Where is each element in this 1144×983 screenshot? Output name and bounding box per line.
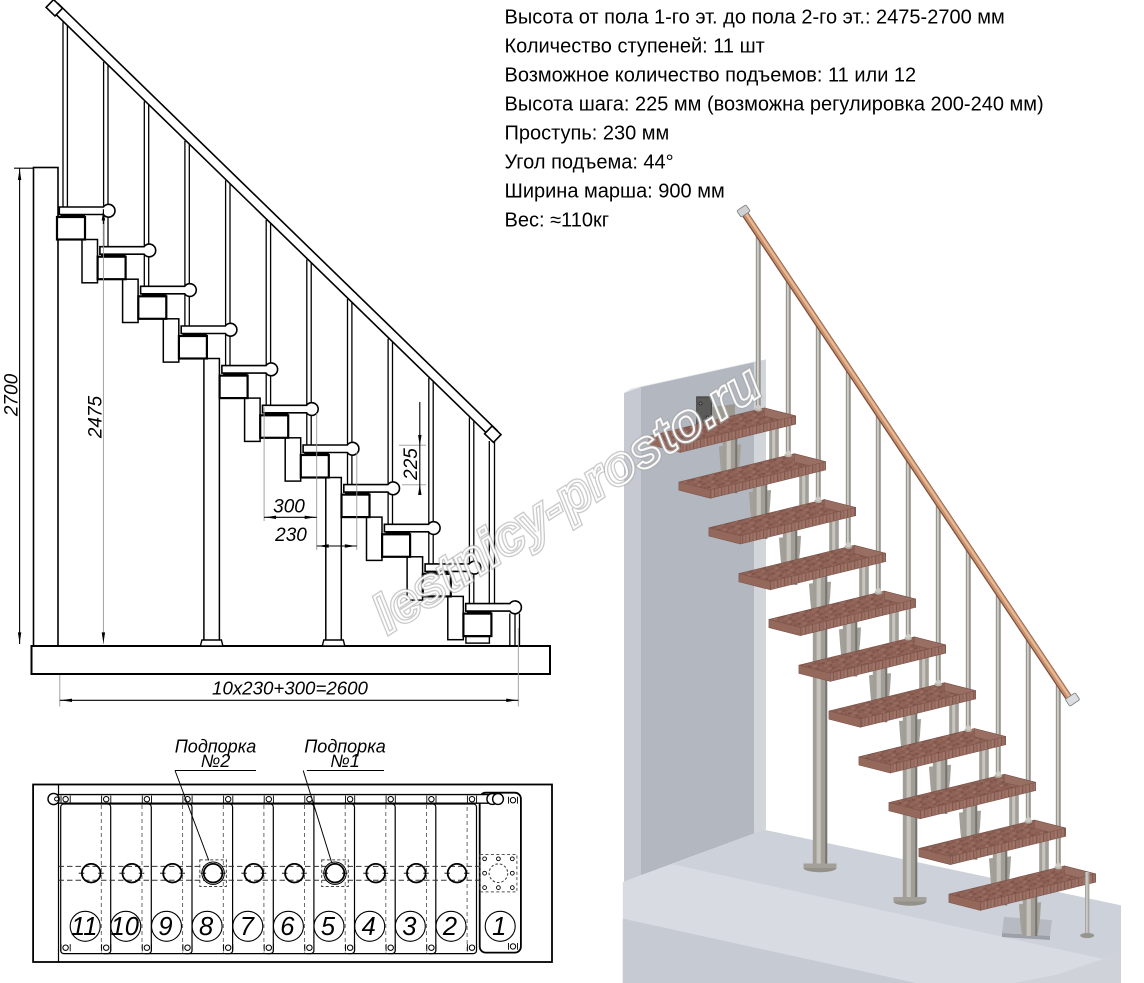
svg-text:Ширина марша: 900 мм: Ширина марша: 900 мм — [505, 181, 725, 203]
svg-text:№1: №1 — [330, 751, 360, 771]
svg-text:Высота от пола 1-го эт. до пол: Высота от пола 1-го эт. до пола 2-го эт.… — [505, 6, 1005, 28]
svg-text:2: 2 — [442, 913, 457, 941]
svg-text:Вес: ≈110кг: Вес: ≈110кг — [505, 210, 609, 232]
svg-text:Высота шага: 225 мм (возможна: Высота шага: 225 мм (возможна регулировк… — [505, 94, 1044, 116]
svg-text:Количество ступеней: 11 шт: Количество ступеней: 11 шт — [505, 35, 765, 57]
svg-text:10x230+300=2600: 10x230+300=2600 — [212, 678, 368, 699]
svg-text:300: 300 — [273, 497, 305, 518]
svg-text:1: 1 — [492, 913, 506, 941]
svg-text:7: 7 — [240, 913, 255, 941]
svg-text:11: 11 — [71, 913, 97, 941]
svg-text:6: 6 — [280, 913, 295, 941]
svg-text:3: 3 — [402, 913, 416, 941]
svg-text:5: 5 — [321, 913, 336, 941]
svg-text:9: 9 — [158, 913, 172, 941]
svg-text:225: 225 — [401, 448, 422, 481]
svg-text:230: 230 — [274, 525, 307, 546]
svg-text:№2: №2 — [201, 751, 231, 771]
svg-text:Проступь: 230 мм: Проступь: 230 мм — [505, 123, 670, 145]
svg-text:Угол подъема: 44°: Угол подъема: 44° — [505, 152, 674, 174]
svg-text:8: 8 — [199, 913, 214, 941]
svg-text:4: 4 — [362, 913, 376, 941]
svg-text:2700: 2700 — [1, 373, 22, 417]
svg-text:10: 10 — [111, 913, 139, 941]
svg-text:2475: 2475 — [86, 395, 107, 439]
svg-text:Возможное количество подъемов:: Возможное количество подъемов: 11 или 12 — [505, 64, 917, 86]
